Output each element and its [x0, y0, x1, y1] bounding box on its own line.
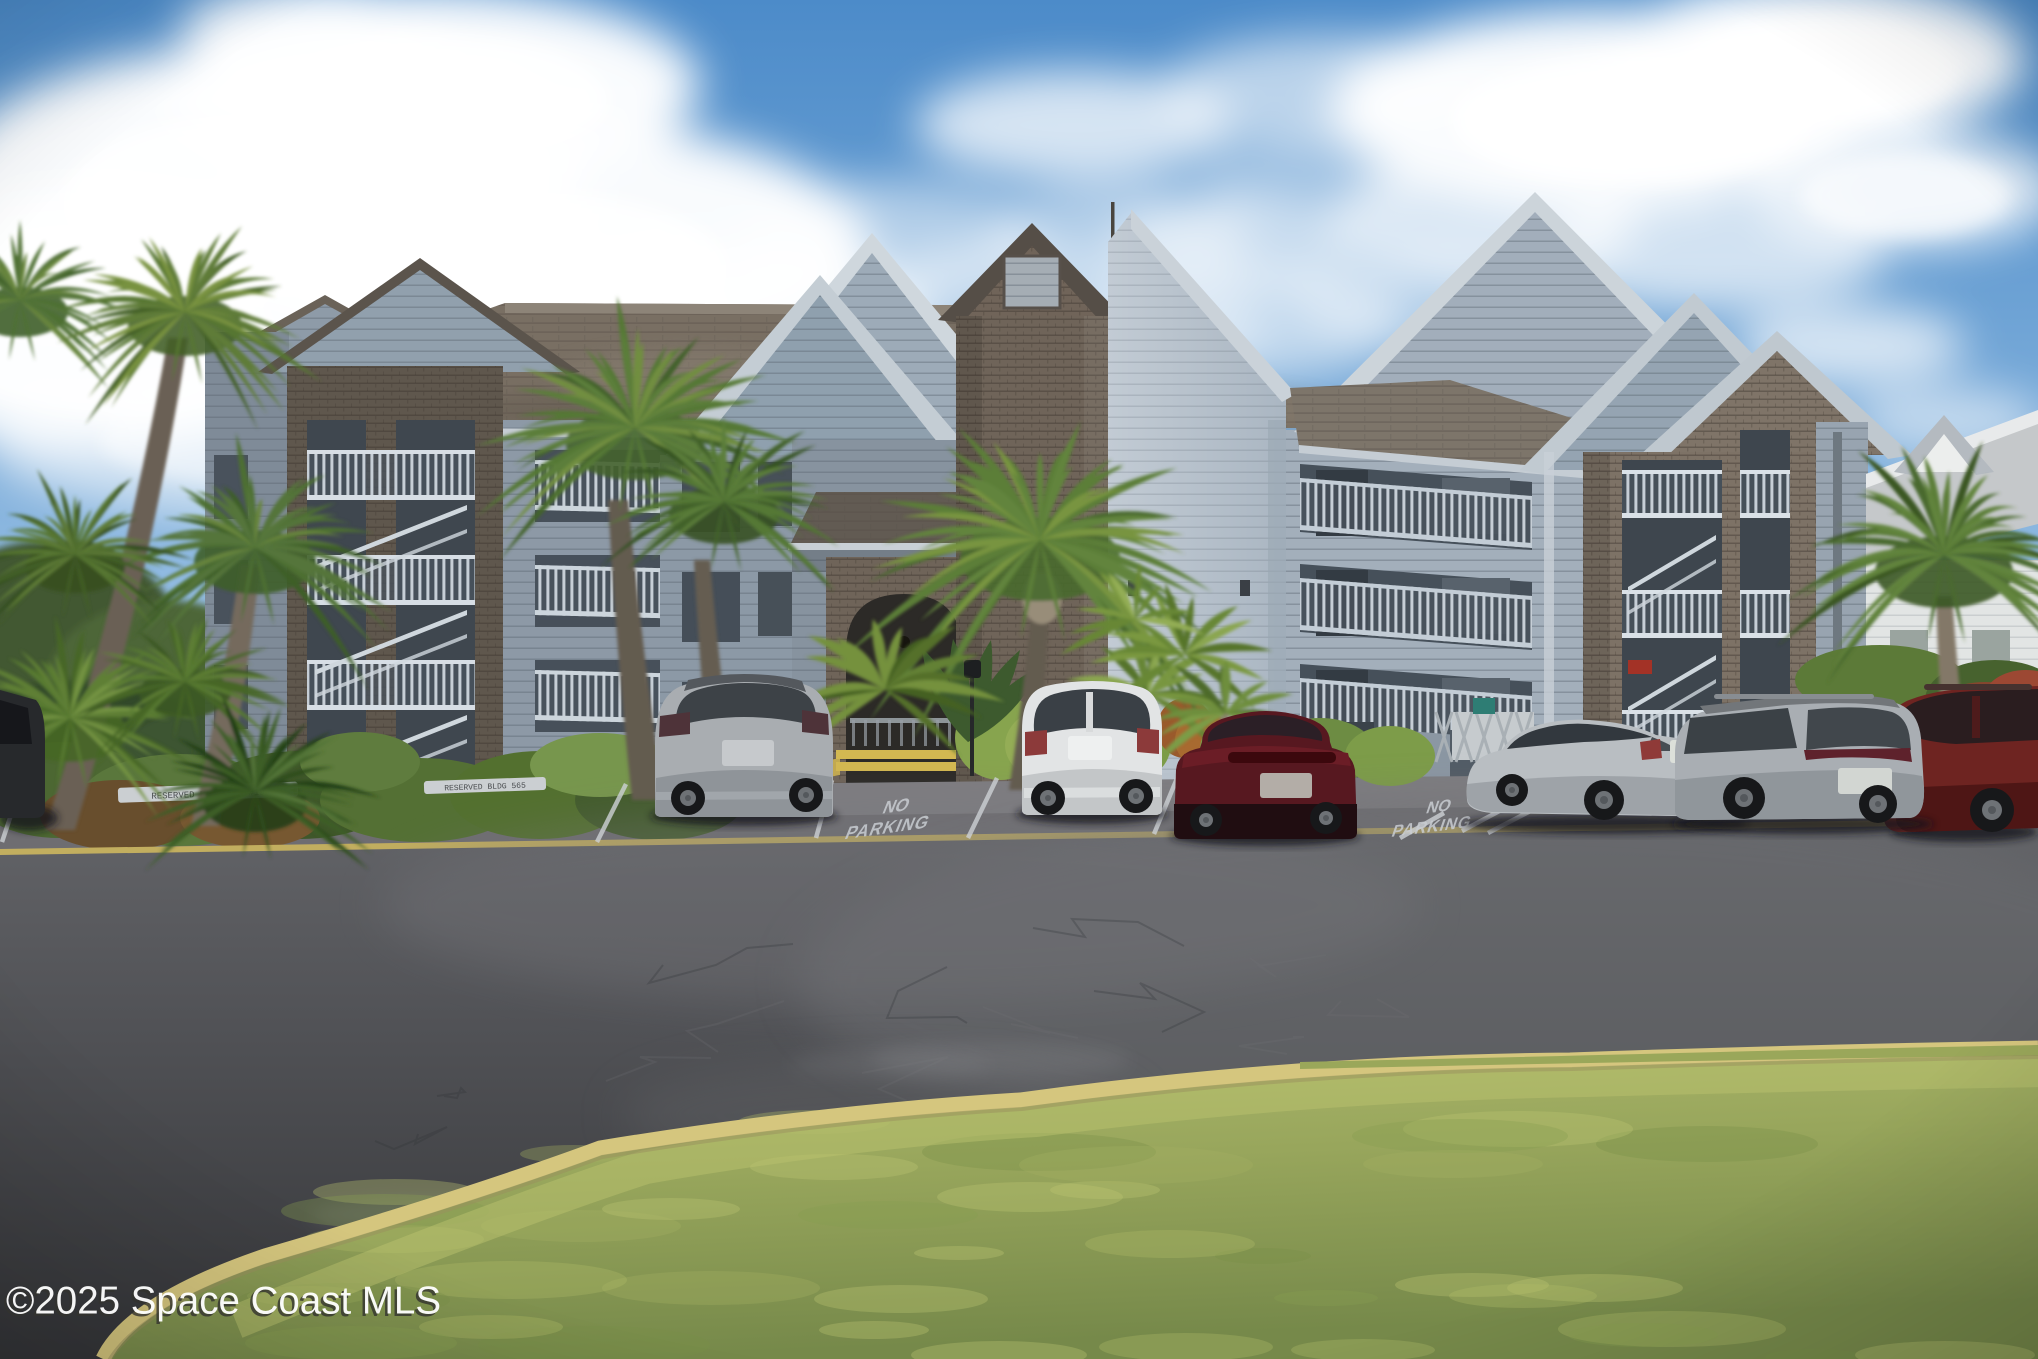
svg-text:©2025 Space Coast MLS: ©2025 Space Coast MLS	[6, 1280, 441, 1323]
